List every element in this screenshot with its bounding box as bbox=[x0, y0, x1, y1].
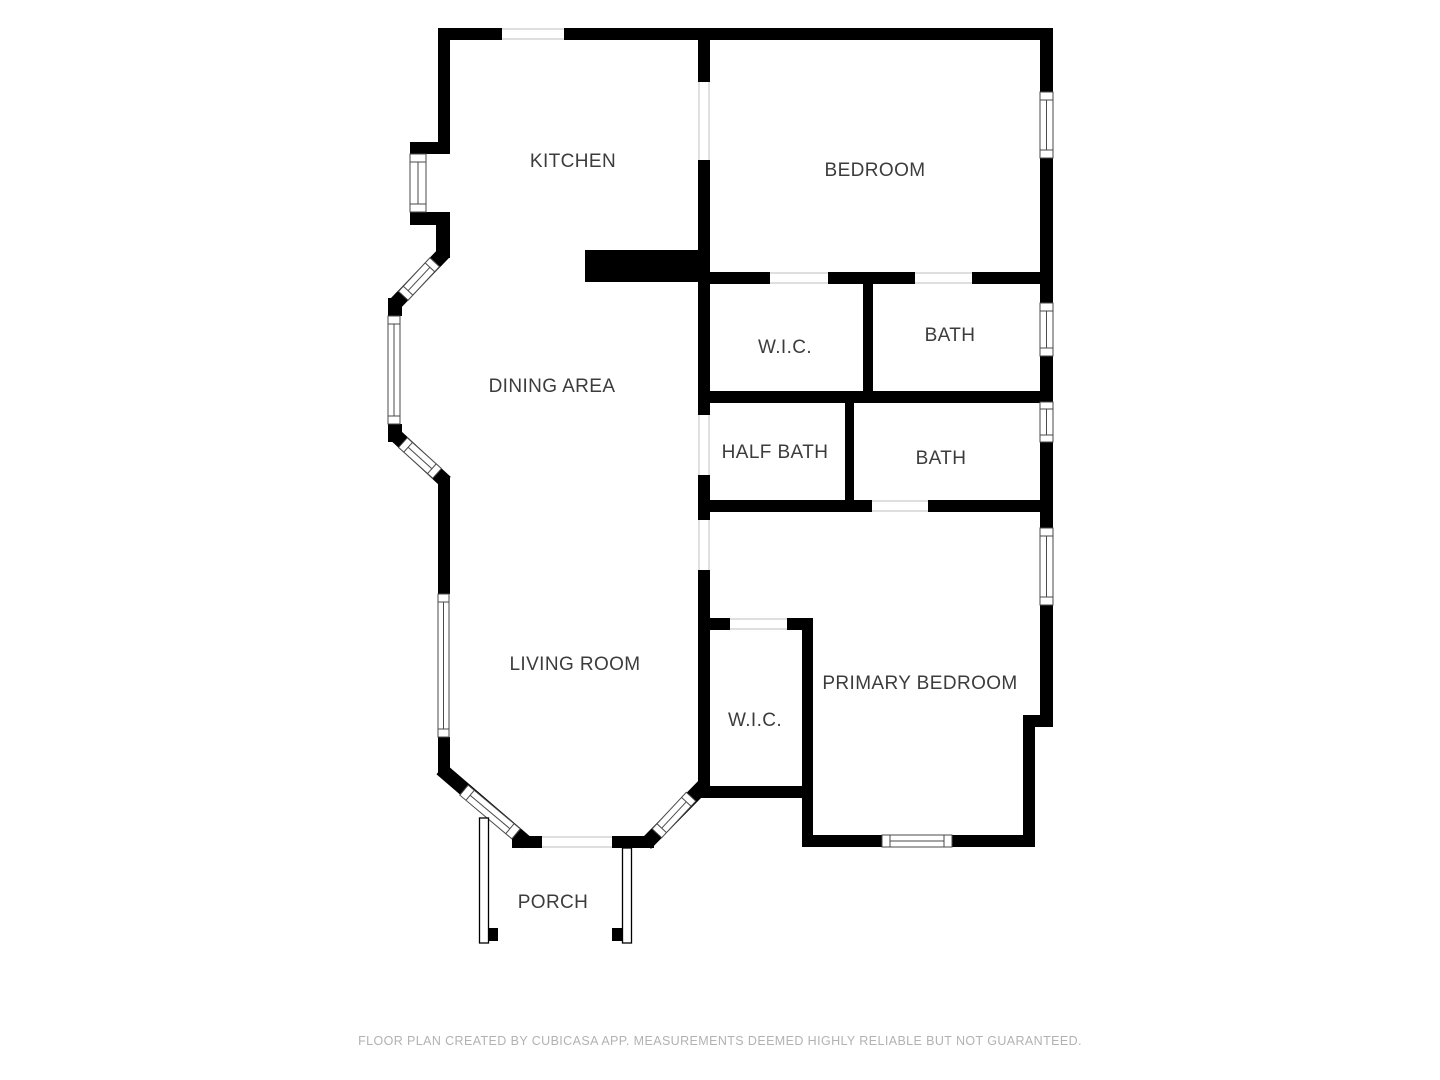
room-label-porch: PORCH bbox=[518, 892, 589, 914]
room-label-living-room: LIVING ROOM bbox=[509, 654, 640, 676]
window-kitchen-left bbox=[410, 154, 426, 212]
porch-post-left bbox=[488, 928, 498, 941]
room-label-dining-area: DINING AREA bbox=[489, 376, 616, 398]
window-primary-right bbox=[1040, 528, 1053, 605]
room-label-kitchen: KITCHEN bbox=[530, 151, 616, 173]
room-label-half-bath: HALF BATH bbox=[722, 442, 829, 464]
room-label-wic-primary: W.I.C. bbox=[728, 710, 782, 732]
window-entry-diagonal-right bbox=[652, 792, 696, 837]
window-bay-upper bbox=[388, 316, 400, 424]
porch-rail-left bbox=[480, 818, 489, 943]
window-primary-bottom bbox=[882, 835, 952, 847]
footer-disclaimer: FLOOR PLAN CREATED BY CUBICASA APP. MEAS… bbox=[0, 1034, 1440, 1048]
room-label-bedroom: BEDROOM bbox=[825, 160, 926, 182]
floor-plan-drawing bbox=[0, 0, 1440, 1080]
porch-post-right bbox=[612, 928, 622, 941]
room-label-bath-upper: BATH bbox=[925, 325, 976, 347]
porch-rail-right bbox=[623, 848, 632, 943]
window-bay-diagonal-lower bbox=[399, 438, 442, 478]
floor-plan-page: KITCHEN BEDROOM DINING AREA W.I.C. BATH … bbox=[0, 0, 1440, 1080]
room-label-primary-bedroom: PRIMARY BEDROOM bbox=[822, 673, 1017, 695]
window-living-left bbox=[438, 594, 449, 737]
window-bedroom-right bbox=[1040, 92, 1053, 158]
window-bath-lower-right bbox=[1040, 402, 1053, 442]
window-bay-diagonal-upper bbox=[399, 258, 440, 301]
room-label-wic-hall: W.I.C. bbox=[758, 337, 812, 359]
window-entry-diagonal-left bbox=[460, 785, 520, 839]
window-bath-upper-right bbox=[1040, 303, 1053, 356]
room-label-bath-lower: BATH bbox=[916, 448, 967, 470]
exterior-walls bbox=[388, 28, 1053, 848]
